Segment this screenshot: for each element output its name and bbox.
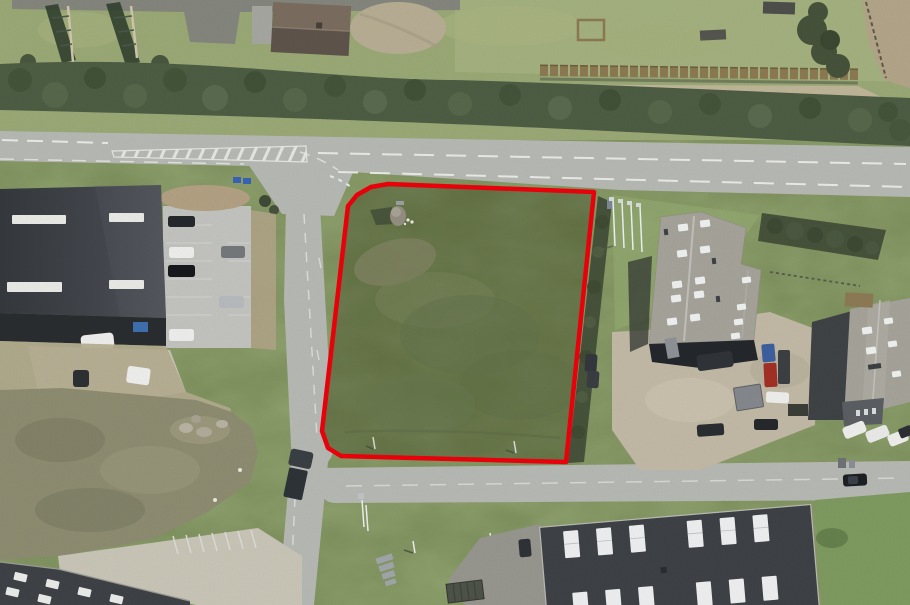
photo-grain xyxy=(0,0,910,605)
aerial-photo xyxy=(0,0,910,605)
aerial-scene xyxy=(0,0,910,605)
